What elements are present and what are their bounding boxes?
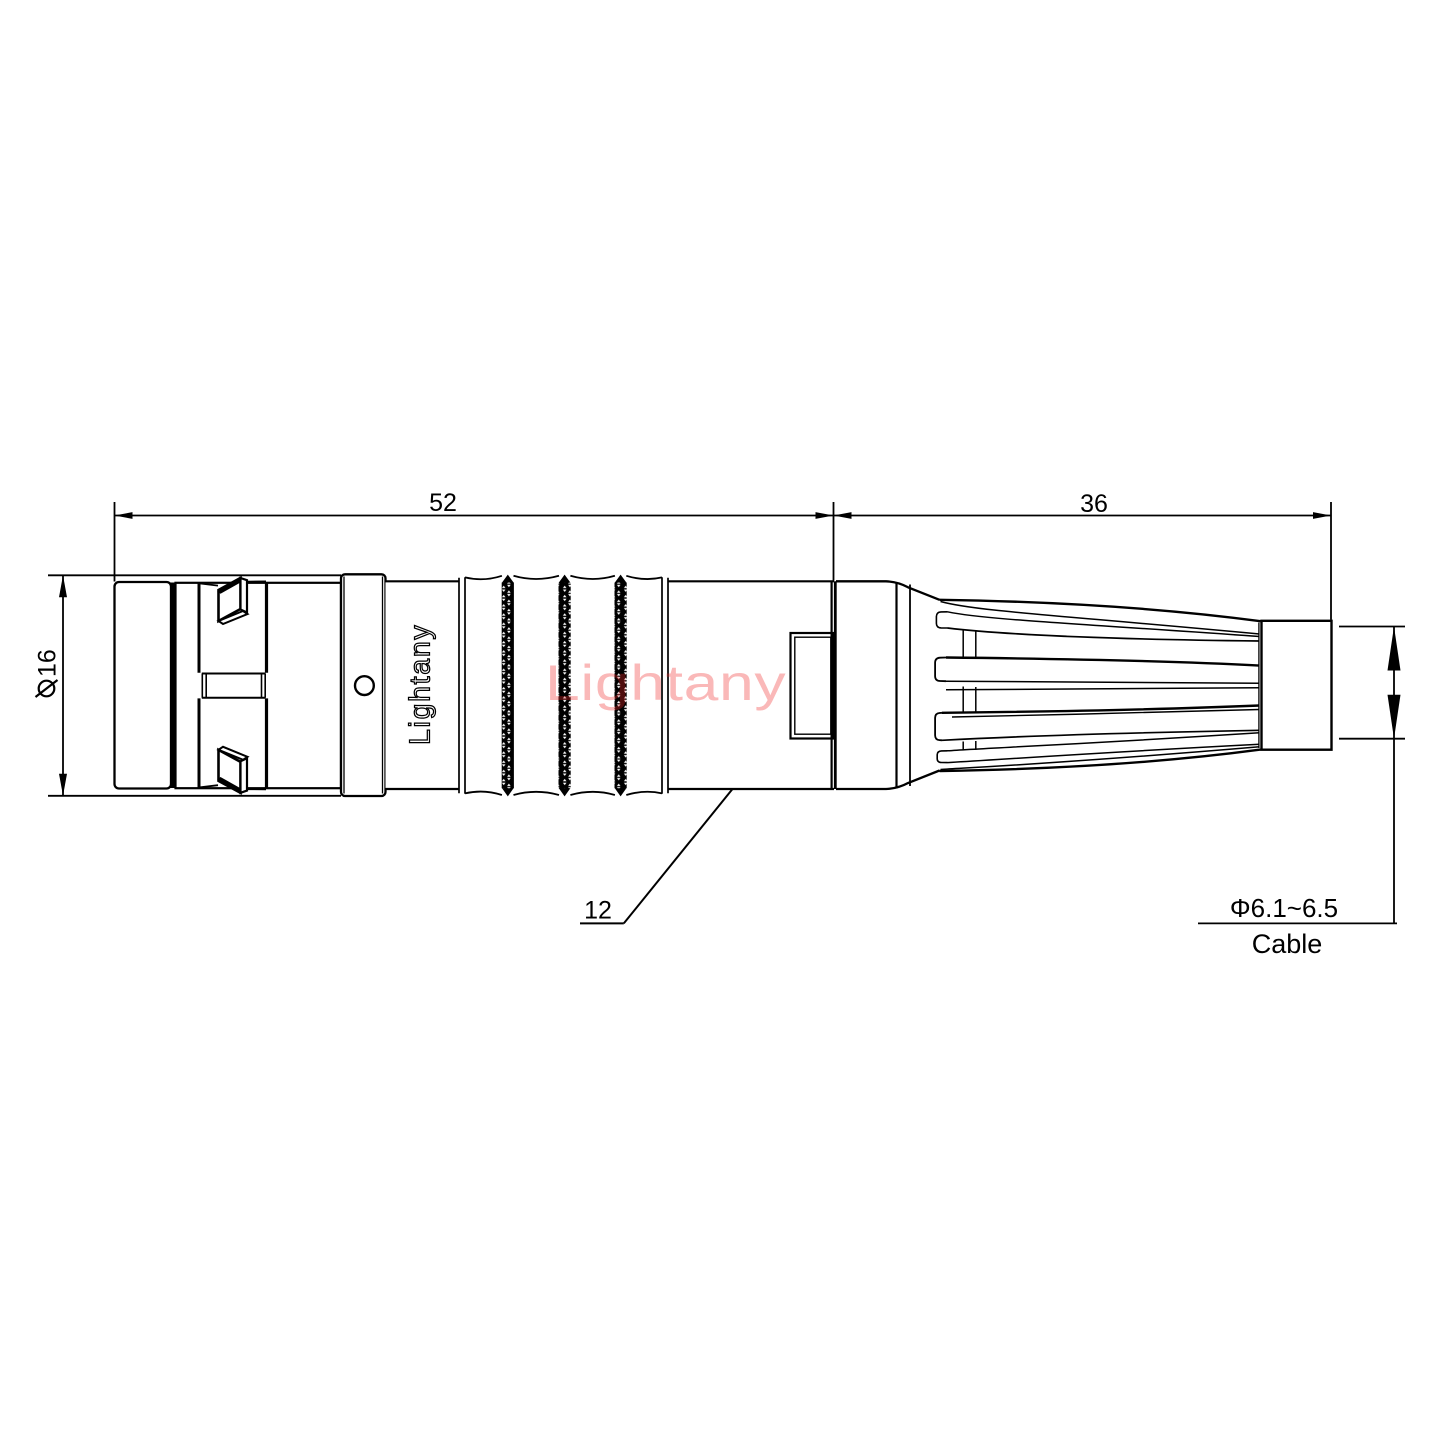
svg-text:16: 16 [34,649,62,677]
svg-text:52: 52 [429,489,457,517]
svg-text:Lightany: Lightany [405,624,437,745]
svg-text:36: 36 [1080,490,1108,518]
svg-text:12: 12 [584,897,612,925]
svg-text:Cable: Cable [1252,929,1323,959]
svg-text:Lightany: Lightany [545,655,786,711]
svg-text:Φ6.1~6.5: Φ6.1~6.5 [1230,893,1338,923]
